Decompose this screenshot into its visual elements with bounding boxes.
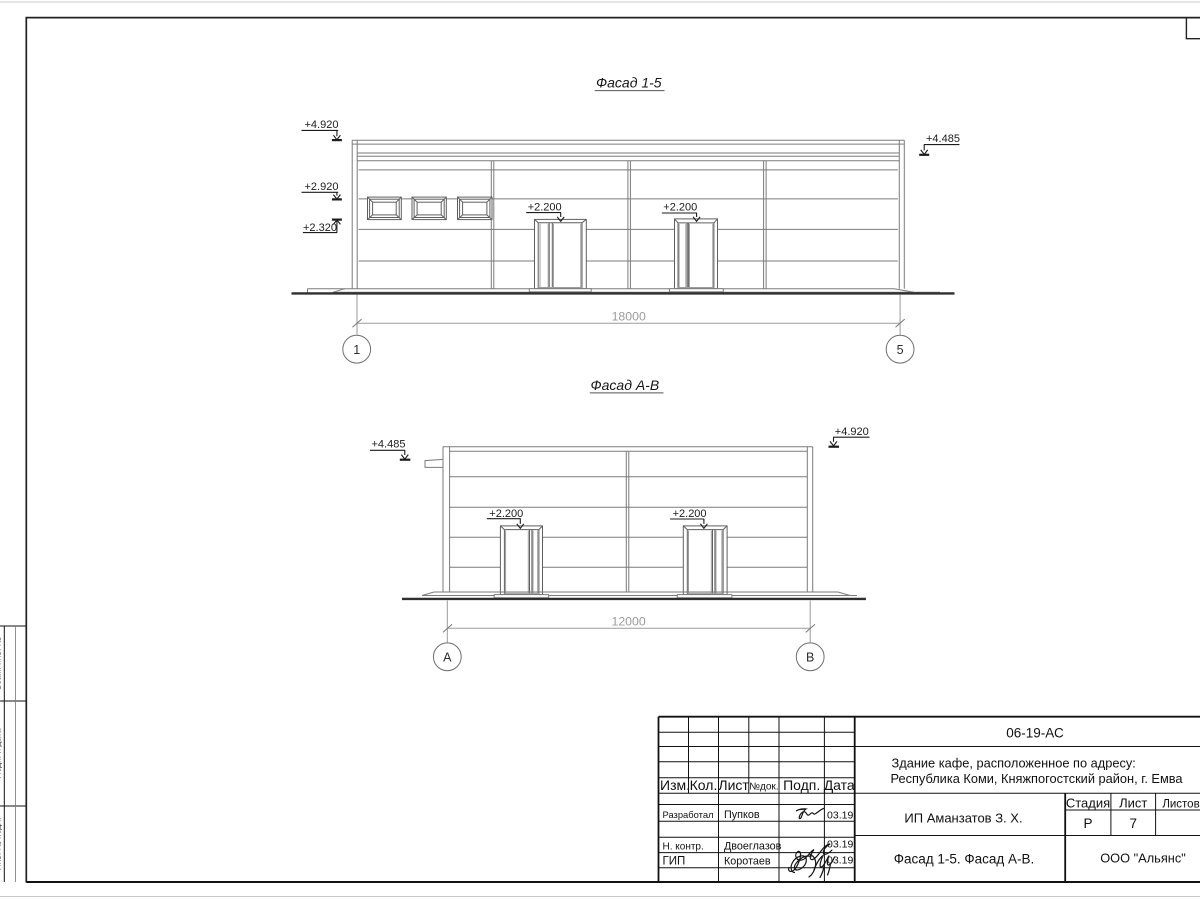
svg-text:Двоеглазов: Двоеглазов	[724, 841, 782, 853]
svg-text:Фасад 1-5. Фасад А-В.: Фасад 1-5. Фасад А-В.	[894, 851, 1035, 866]
svg-text:Дата: Дата	[824, 777, 855, 793]
svg-text:В: В	[806, 650, 814, 664]
svg-text:06-19-АС: 06-19-АС	[1006, 726, 1064, 741]
svg-text:+2.200: +2.200	[663, 201, 697, 213]
svg-text:А: А	[443, 650, 452, 664]
svg-text:Лист: Лист	[1119, 795, 1147, 810]
svg-text:03.19: 03.19	[827, 809, 853, 821]
svg-text:7: 7	[1129, 816, 1137, 831]
svg-text:+4.485: +4.485	[926, 133, 960, 145]
svg-text:Подп. и дата: Подп. и дата	[0, 728, 3, 778]
svg-text:№док.: №док.	[749, 781, 778, 792]
svg-text:03.19: 03.19	[827, 855, 853, 867]
svg-text:+4.920: +4.920	[835, 426, 869, 438]
svg-text:+2.200: +2.200	[528, 201, 562, 213]
svg-text:Кол.: Кол.	[690, 777, 718, 793]
svg-text:Разработал: Разработал	[663, 809, 714, 820]
svg-text:Подп.: Подп.	[783, 777, 820, 793]
svg-text:Изм.: Изм.	[660, 777, 690, 793]
svg-text:03.19: 03.19	[827, 838, 853, 850]
svg-text:Фасад 1-5: Фасад 1-5	[596, 75, 662, 91]
svg-text:+4.920: +4.920	[305, 119, 339, 131]
svg-text:18000: 18000	[612, 309, 646, 323]
svg-text:5: 5	[897, 343, 904, 357]
svg-text:Пупков: Пупков	[724, 809, 760, 821]
svg-text:Здание кафе, расположенное по: Здание кафе, расположенное по адресу:	[892, 756, 1136, 771]
svg-text:Взам. инв. №: Взам. инв. №	[0, 637, 3, 690]
svg-text:+2.920: +2.920	[305, 181, 339, 193]
svg-text:12000: 12000	[611, 615, 645, 629]
svg-text:Лист: Лист	[718, 777, 749, 793]
svg-text:ГИП: ГИП	[663, 855, 686, 867]
svg-text:Фасад А-В: Фасад А-В	[591, 377, 660, 393]
svg-text:+2.200: +2.200	[673, 508, 707, 520]
svg-text:ООО "Альянс": ООО "Альянс"	[1100, 850, 1186, 865]
svg-text:ИП Аманзатов З. Х.: ИП Аманзатов З. Х.	[904, 810, 1022, 825]
svg-text:+4.485: +4.485	[372, 439, 406, 451]
svg-text:1: 1	[353, 343, 360, 357]
svg-text:Стадия: Стадия	[1066, 795, 1110, 810]
svg-text:Листов: Листов	[1162, 798, 1199, 810]
svg-text:Коротаев: Коротаев	[724, 856, 771, 868]
svg-text:Н. контр.: Н. контр.	[663, 841, 704, 852]
svg-text:Республика Коми, Княжпогостски: Республика Коми, Княжпогостский район, г…	[891, 771, 1184, 786]
svg-text:Инв. № подл.: Инв. № подл.	[0, 818, 3, 871]
svg-text:Р: Р	[1083, 816, 1092, 831]
